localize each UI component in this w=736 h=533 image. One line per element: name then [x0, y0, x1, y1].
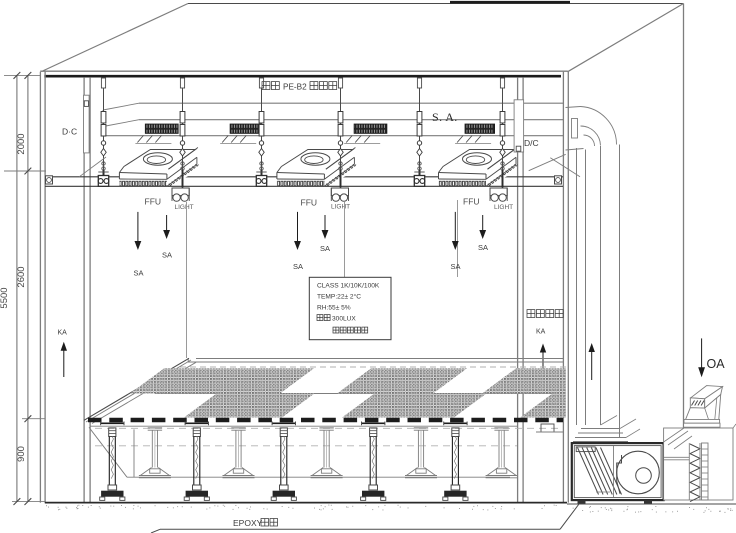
svg-text:KA: KA — [536, 329, 546, 336]
svg-text:CLASS 1K/10K/100K: CLASS 1K/10K/100K — [317, 283, 380, 290]
svg-text:300LUX: 300LUX — [332, 316, 356, 323]
svg-text:FFU: FFU — [145, 197, 162, 207]
svg-text:SA: SA — [162, 251, 172, 260]
svg-text:5500: 5500 — [0, 287, 10, 308]
svg-text:TEMP:22± 2°C: TEMP:22± 2°C — [317, 293, 361, 301]
svg-text:EPOXY: EPOXY — [233, 518, 263, 528]
svg-text:PE-B2: PE-B2 — [283, 83, 307, 92]
svg-text:2000: 2000 — [16, 133, 27, 154]
svg-text:S. A.: S. A. — [432, 110, 458, 124]
svg-text:FFU: FFU — [463, 197, 480, 207]
svg-text:SA: SA — [451, 262, 461, 271]
svg-text:SA: SA — [293, 262, 303, 271]
svg-text:OA: OA — [707, 357, 726, 371]
svg-text:LIGHT: LIGHT — [175, 204, 194, 211]
svg-text:SA: SA — [478, 243, 488, 252]
svg-text:LIGHT: LIGHT — [331, 204, 350, 211]
svg-text:LIGHT: LIGHT — [494, 204, 513, 211]
svg-text:SA: SA — [134, 269, 144, 278]
svg-text:RH:55± 5%: RH:55± 5% — [317, 305, 351, 312]
svg-text:KA: KA — [58, 330, 68, 337]
svg-text:D/C: D/C — [524, 138, 539, 148]
svg-text:SA: SA — [320, 244, 330, 253]
svg-text:2600: 2600 — [16, 266, 27, 287]
svg-text:900: 900 — [16, 446, 27, 462]
svg-text:FFU: FFU — [301, 198, 318, 208]
svg-text:D·C: D·C — [62, 127, 77, 137]
